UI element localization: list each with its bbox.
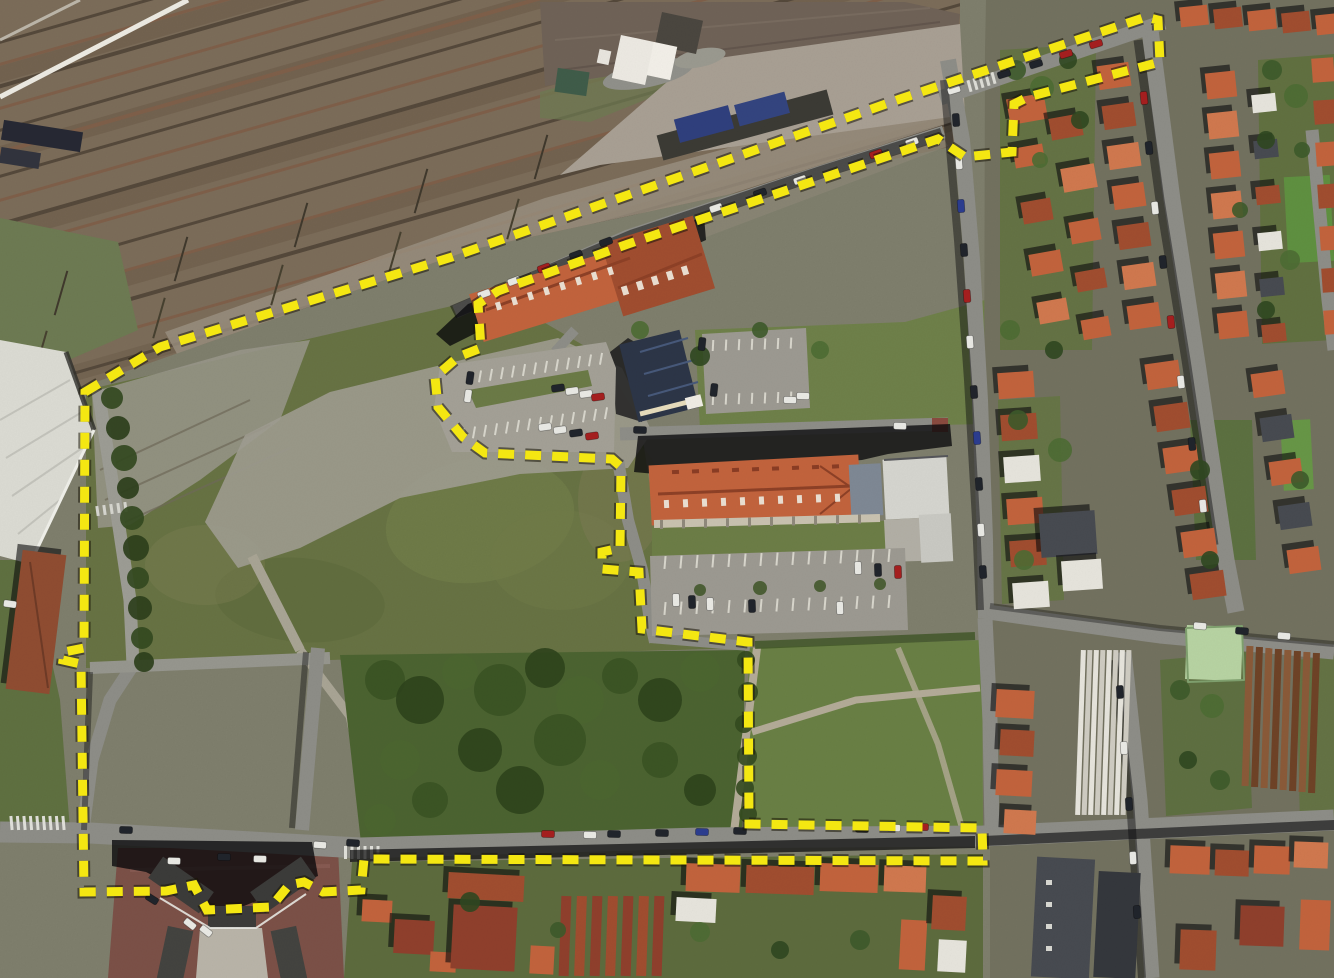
photo-grain-texture bbox=[0, 0, 1334, 978]
aerial-photograph bbox=[0, 0, 1334, 978]
aerial-scene bbox=[0, 0, 1334, 978]
